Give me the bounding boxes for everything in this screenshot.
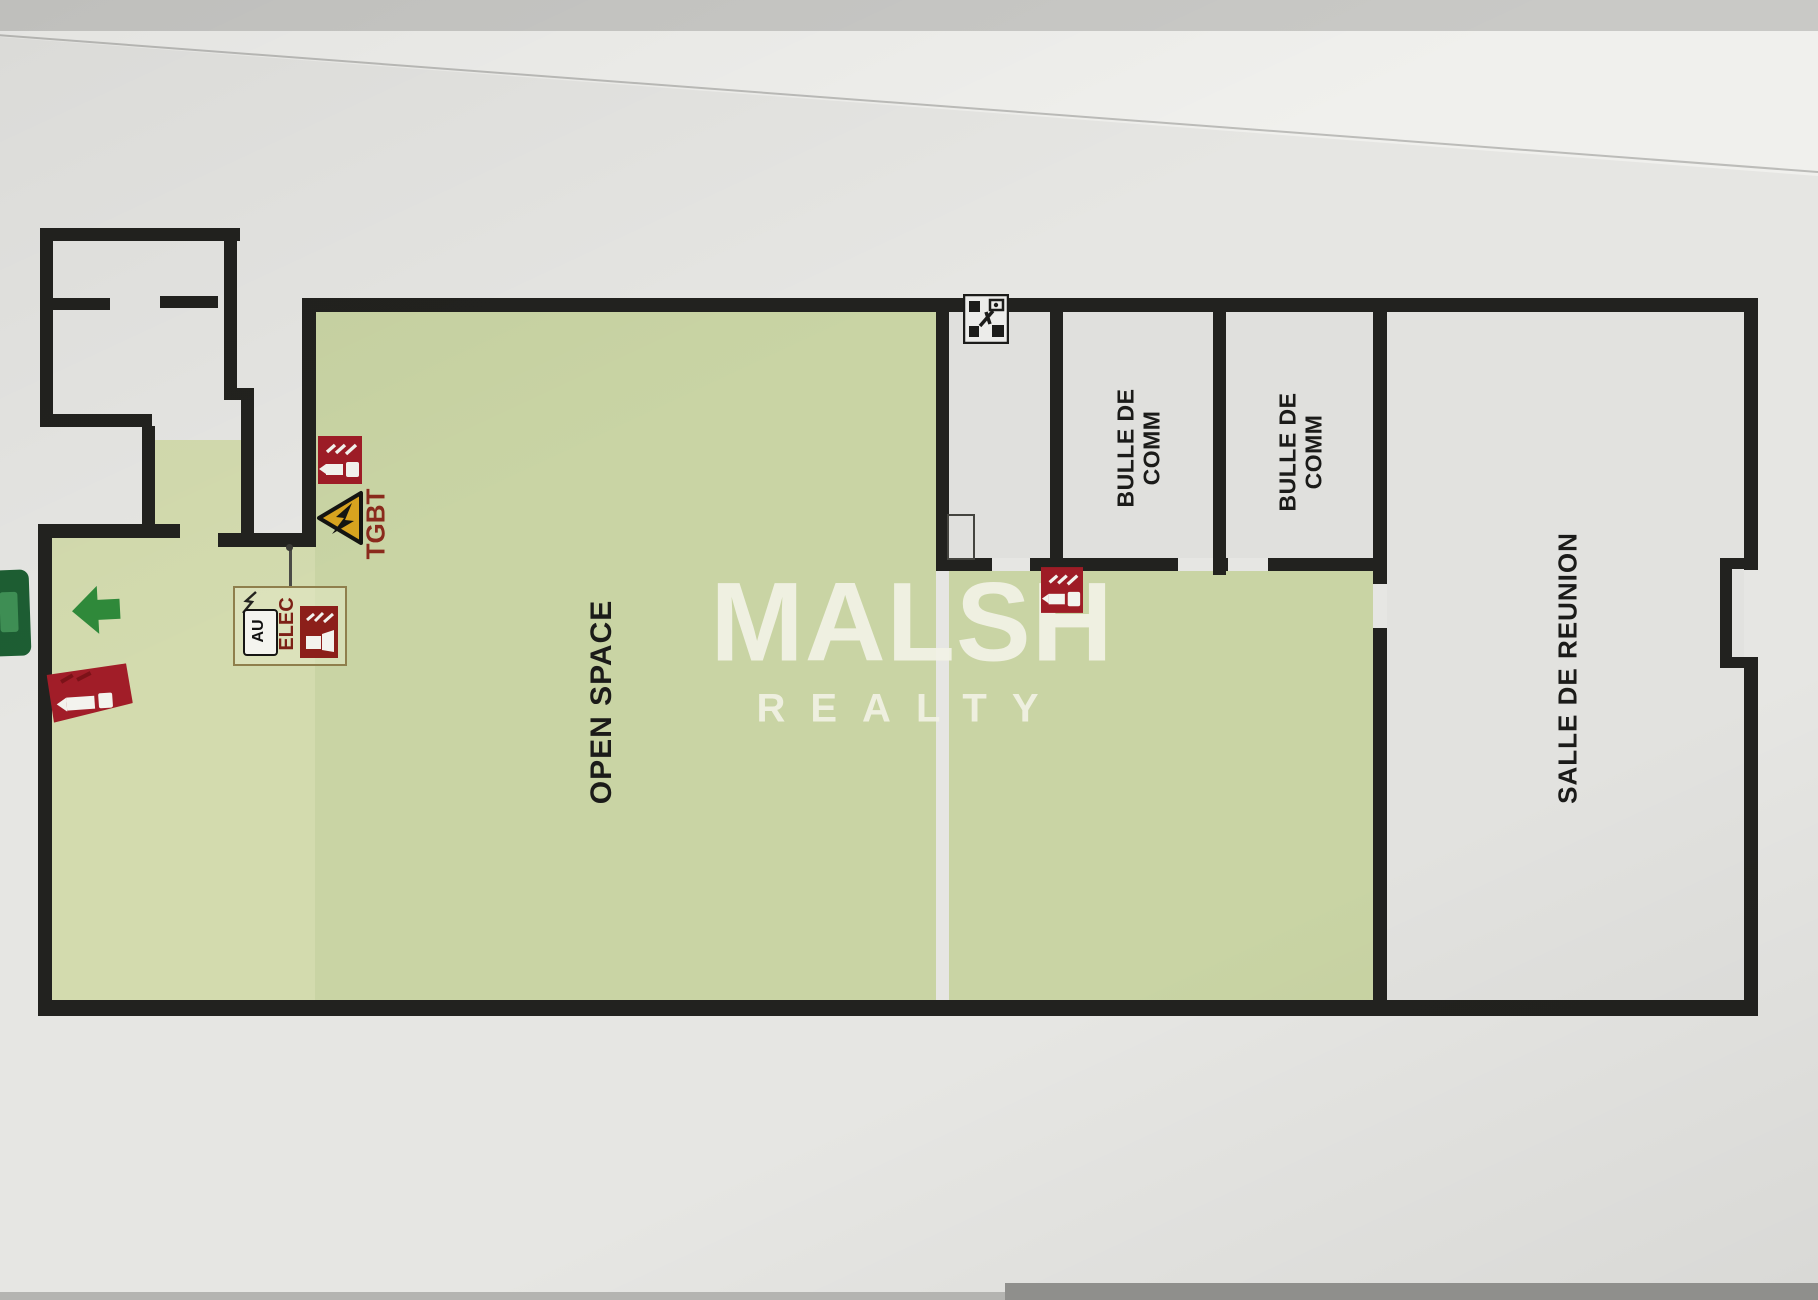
wall-divider-lower	[1373, 628, 1387, 1016]
wall-segment	[40, 228, 53, 426]
evacuation-plan-photo: MALSH REALTY OPEN SPACE BULLE DE COMM BU…	[0, 0, 1818, 1300]
photo-bottom-corner	[1005, 1283, 1818, 1300]
wall-segment	[40, 298, 110, 310]
bulle-comm-1-line2: COMM	[1139, 389, 1165, 508]
open-space-label: OPEN SPACE	[585, 600, 619, 805]
bulle-comm-1-line1: BULLE DE	[1113, 389, 1139, 508]
wall-segment	[160, 296, 218, 308]
wall-bottom-outer	[38, 1000, 1758, 1016]
wall-notch	[1720, 558, 1732, 668]
wall-segment	[218, 533, 316, 547]
electrical-hazard-triangle-icon	[316, 490, 364, 546]
wall-segment	[224, 238, 237, 400]
watermark-subtitle: REALTY	[756, 687, 1063, 732]
door-swing	[947, 514, 975, 560]
wall-segment	[302, 298, 316, 546]
bulle-comm-2-line1: BULLE DE	[1275, 393, 1301, 512]
wall-left-outer	[38, 524, 52, 1016]
wall-divider-upper	[1373, 298, 1387, 584]
exit-sign-pictogram	[0, 592, 19, 633]
equipment-pictogram-icon	[963, 294, 1009, 344]
fire-extinguisher-icon	[1041, 566, 1083, 614]
wall-right-outer	[1744, 657, 1758, 1016]
emergency-exit-sign-icon	[0, 569, 31, 656]
wall-notch-stub	[1728, 558, 1758, 569]
fire-extinguisher-icon	[318, 436, 362, 484]
elec-label: ELEC	[276, 597, 298, 650]
wall-segment	[142, 426, 155, 538]
wall-segment	[40, 414, 152, 427]
wall-segment	[1213, 298, 1226, 575]
manual-call-point-icon	[300, 606, 338, 658]
wall-segment	[1268, 558, 1385, 571]
wall-segment	[38, 524, 180, 538]
fire-extinguisher-icon	[46, 663, 134, 723]
wall-top-outer	[302, 298, 1758, 312]
au-label: AU	[250, 619, 268, 642]
tgbt-label: TGBT	[361, 489, 390, 560]
bulle-comm-1-label: BULLE DE COMM	[1113, 389, 1165, 508]
wall-segment	[241, 388, 254, 546]
wall-segment	[40, 228, 240, 241]
photo-top-band	[0, 0, 1818, 31]
salle-reunion-label: SALLE DE REUNION	[1553, 532, 1582, 804]
legend-leader-line	[289, 549, 292, 586]
bulle-comm-2-line2: COMM	[1301, 393, 1327, 512]
legend-leader-dot	[286, 544, 293, 551]
wall-segment	[1050, 298, 1063, 570]
wall-right-outer	[1744, 298, 1758, 570]
bulle-comm-2-label: BULLE DE COMM	[1275, 393, 1327, 512]
exit-direction-arrow-icon	[68, 579, 123, 642]
wall-segment	[1213, 558, 1228, 571]
